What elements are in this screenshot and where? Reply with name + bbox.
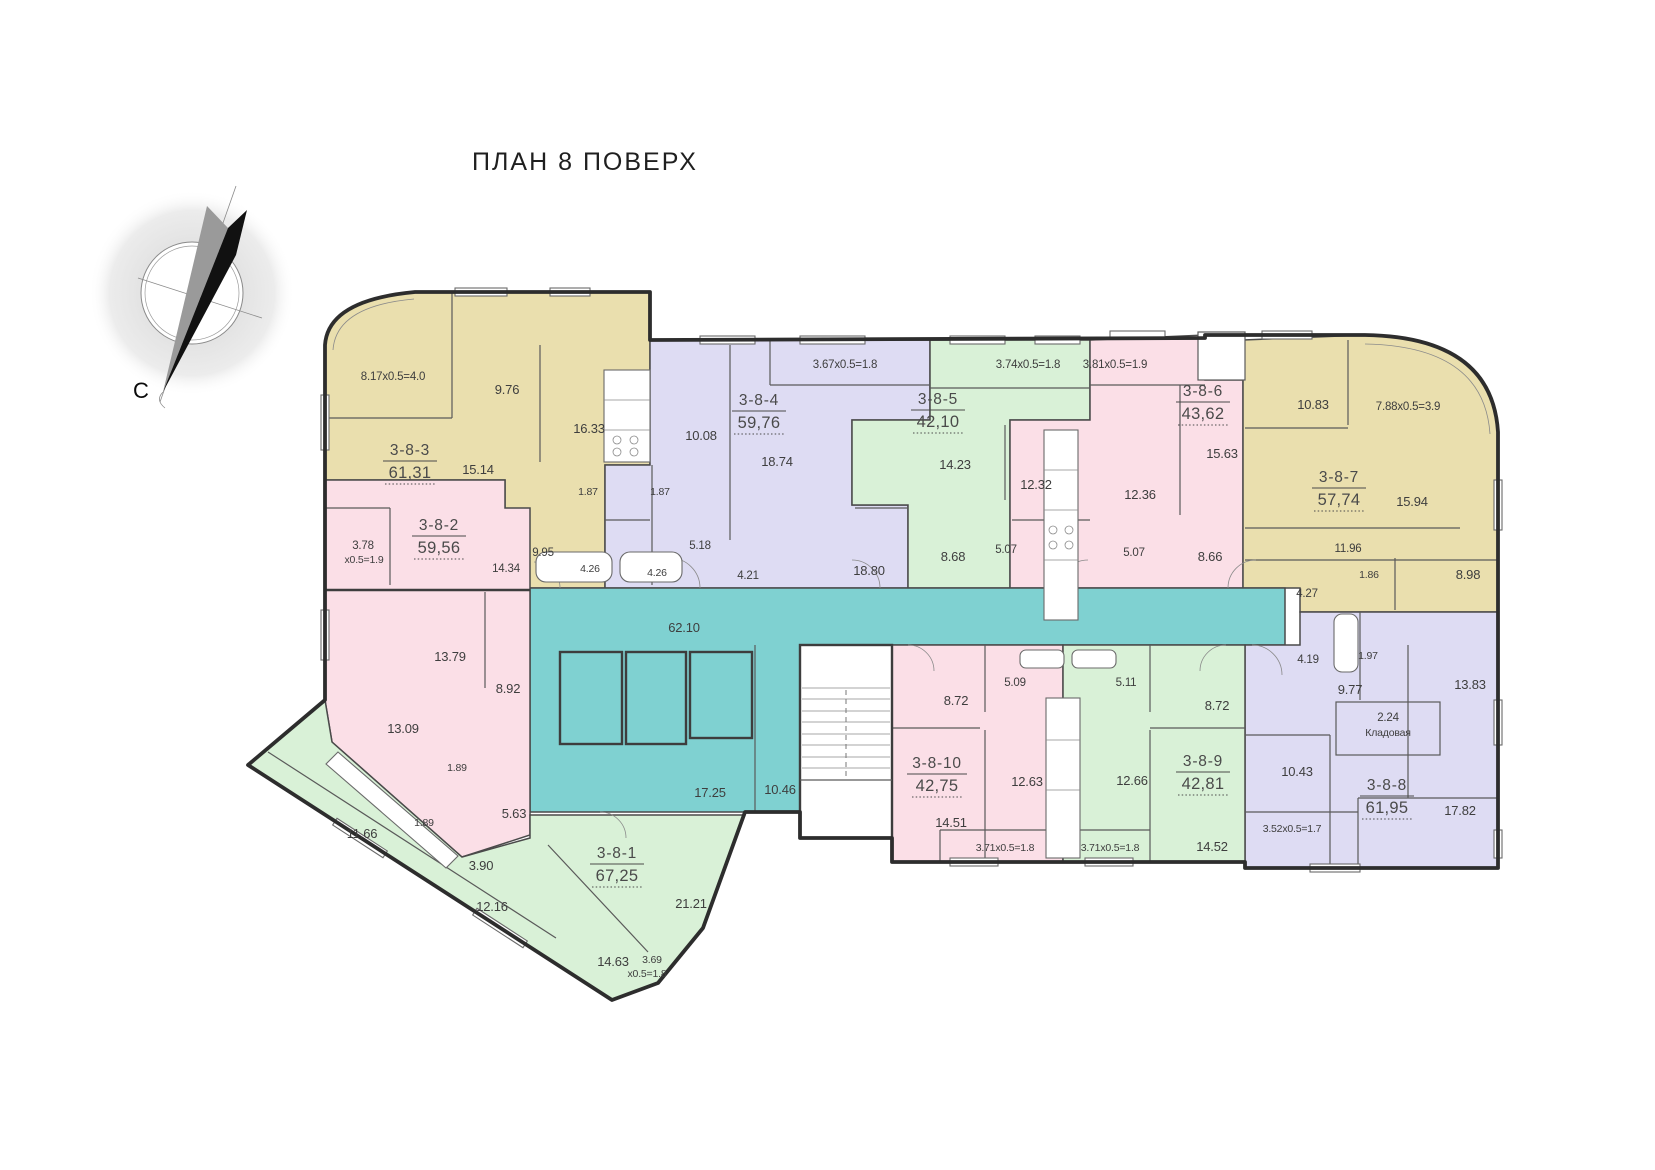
room-area-label: 10.08 bbox=[685, 428, 717, 443]
unit-number: 3-8-1 bbox=[597, 845, 637, 862]
room-area-label: 10.43 bbox=[1281, 764, 1313, 779]
room-area-label: 1.89 bbox=[414, 817, 434, 829]
unit-number: 3-8-4 bbox=[739, 392, 779, 409]
balcony-label: 3.74х0.5=1.8 bbox=[996, 359, 1060, 371]
room-area-label: 5.07 bbox=[995, 544, 1017, 556]
room-area-label: 14.23 bbox=[939, 457, 971, 472]
corridor-area-label: 10.46 bbox=[764, 782, 796, 797]
unit-area: 43,62 bbox=[1182, 405, 1225, 423]
room-area-label: 4.26 bbox=[647, 567, 667, 579]
unit-area: 61,31 bbox=[389, 464, 432, 482]
room-area-label: 1.97 bbox=[1358, 650, 1378, 662]
unit-number: 3-8-5 bbox=[918, 391, 958, 408]
room-area-label: 13.83 bbox=[1454, 677, 1486, 692]
room-area-label: 15.14 bbox=[462, 462, 494, 477]
balcony-label: 3.71х0.5=1.8 bbox=[976, 842, 1035, 854]
room-area-label: 11.66 bbox=[347, 826, 378, 841]
room-area-label: 11.96 bbox=[1335, 543, 1362, 555]
balcony-label: 3.81х0.5=1.9 bbox=[1083, 359, 1147, 371]
unit-area: 57,74 bbox=[1318, 491, 1361, 509]
corridor-area-label: 17.25 bbox=[694, 785, 726, 800]
balcony-label: 3.71х0.5=1.8 bbox=[1081, 842, 1140, 854]
room-area-label: 4.27 bbox=[1296, 588, 1318, 600]
balcony-label: 3.52х0.5=1.7 bbox=[1263, 823, 1322, 835]
balcony-label: 8.17х0.5=4.0 bbox=[361, 371, 425, 383]
room-area-label: 8.98 bbox=[1456, 567, 1481, 582]
room-area-label: 2.24 bbox=[1377, 712, 1399, 724]
room-area-label: 5.07 bbox=[1123, 547, 1145, 559]
unit-number: 3-8-2 bbox=[419, 517, 459, 534]
unit-number: 3-8-6 bbox=[1183, 383, 1223, 400]
bathtub bbox=[1334, 614, 1358, 672]
room-area-label: 12.32 bbox=[1020, 477, 1052, 492]
bathtub bbox=[1072, 650, 1116, 668]
room-area-label: 3.69 bbox=[642, 954, 662, 966]
unit-area: 59,76 bbox=[738, 414, 781, 432]
room-area-label: 14.63 bbox=[597, 954, 629, 969]
room-area-label: 1.87 bbox=[578, 486, 598, 498]
room-area-label: 12.66 bbox=[1116, 773, 1148, 788]
compass: С bbox=[89, 186, 295, 408]
room-area-label: 4.21 bbox=[737, 570, 759, 582]
room-area-label: 1.89 bbox=[447, 762, 467, 774]
room-area-label: 17.82 bbox=[1444, 803, 1476, 818]
balcony-label: 3.67х0.5=1.8 bbox=[813, 359, 877, 371]
room-area-label: 8.72 bbox=[1205, 698, 1230, 713]
unit-area: 42,81 bbox=[1182, 775, 1225, 793]
room-area-label: 9.76 bbox=[495, 382, 520, 397]
bathtub bbox=[1020, 650, 1064, 668]
room-area-label: 3.90 bbox=[469, 858, 494, 873]
room-area-label: 9.77 bbox=[1338, 682, 1363, 697]
unit-number: 3-8-3 bbox=[390, 442, 430, 459]
room-area-label: 14.51 bbox=[935, 815, 967, 830]
room-area-label: 5.11 bbox=[1116, 677, 1137, 689]
balcony-label: 7.88х0.5=3.9 bbox=[1376, 401, 1440, 413]
unit-number: 3-8-7 bbox=[1319, 469, 1359, 486]
unit-area: 61,95 bbox=[1366, 799, 1409, 817]
room-area-label: х0.5=1.8 bbox=[628, 968, 667, 980]
room-area-label: 8.92 bbox=[496, 681, 521, 696]
room-area-label: 8.68 bbox=[941, 549, 966, 564]
unit-number: 3-8-9 bbox=[1183, 753, 1223, 770]
room-area-label: 1.86 bbox=[1359, 569, 1379, 581]
plan-title: ПЛАН 8 ПОВЕРХ bbox=[472, 148, 698, 176]
room-area-label: 4.19 bbox=[1297, 654, 1319, 666]
room-area-label: 13.79 bbox=[434, 649, 466, 664]
room-area-label: 4.26 bbox=[580, 563, 600, 575]
room-area-label: 18.80 bbox=[853, 563, 885, 578]
room-area-label: 15.94 bbox=[1396, 494, 1428, 509]
room-area-label: 12.36 bbox=[1124, 487, 1156, 502]
room-area-label: х0.5=1.9 bbox=[345, 554, 384, 566]
compass-north-label: С bbox=[133, 378, 149, 403]
room-area-label: 9.95 bbox=[532, 547, 554, 559]
corridor-area-label: 62.10 bbox=[668, 620, 700, 635]
room-area-label: 14.34 bbox=[492, 563, 521, 575]
room-area-label: 8.72 bbox=[944, 693, 969, 708]
room-area-label: 10.83 bbox=[1297, 397, 1329, 412]
room-area-label: 16.33 bbox=[573, 421, 605, 436]
room-area-label: 13.09 bbox=[387, 721, 419, 736]
room-area-label: 5.18 bbox=[689, 540, 711, 552]
room-area-label: 3.78 bbox=[352, 540, 374, 552]
room-area-label: 5.09 bbox=[1004, 677, 1026, 689]
unit-area: 42,10 bbox=[917, 413, 960, 431]
room-area-label: 12.16 bbox=[476, 899, 508, 914]
unit-number: 3-8-8 bbox=[1367, 777, 1407, 794]
unit-area: 42,75 bbox=[916, 777, 959, 795]
room-area-label: 18.74 bbox=[761, 454, 793, 469]
storage-room-label: Кладовая bbox=[1365, 727, 1410, 739]
room-area-label: 21.21 bbox=[675, 896, 707, 911]
room-area-label: 12.63 bbox=[1011, 774, 1043, 789]
staircase bbox=[800, 645, 892, 838]
room-area-label: 1.87 bbox=[650, 486, 670, 498]
floor-plan-drawing: ПЛАН 8 ПОВЕРХ С bbox=[0, 0, 1655, 1170]
room-area-label: 5.63 bbox=[502, 806, 527, 821]
room-area-label: 14.52 bbox=[1196, 839, 1228, 854]
room-area-label: 8.66 bbox=[1198, 549, 1223, 564]
room-area-label: 15.63 bbox=[1206, 446, 1238, 461]
unit-number: 3-8-10 bbox=[912, 755, 962, 772]
unit-area: 59,56 bbox=[418, 539, 461, 557]
unit-area: 67,25 bbox=[596, 867, 639, 885]
floor-plan-page: ПЛАН 8 ПОВЕРХ С bbox=[0, 0, 1655, 1170]
